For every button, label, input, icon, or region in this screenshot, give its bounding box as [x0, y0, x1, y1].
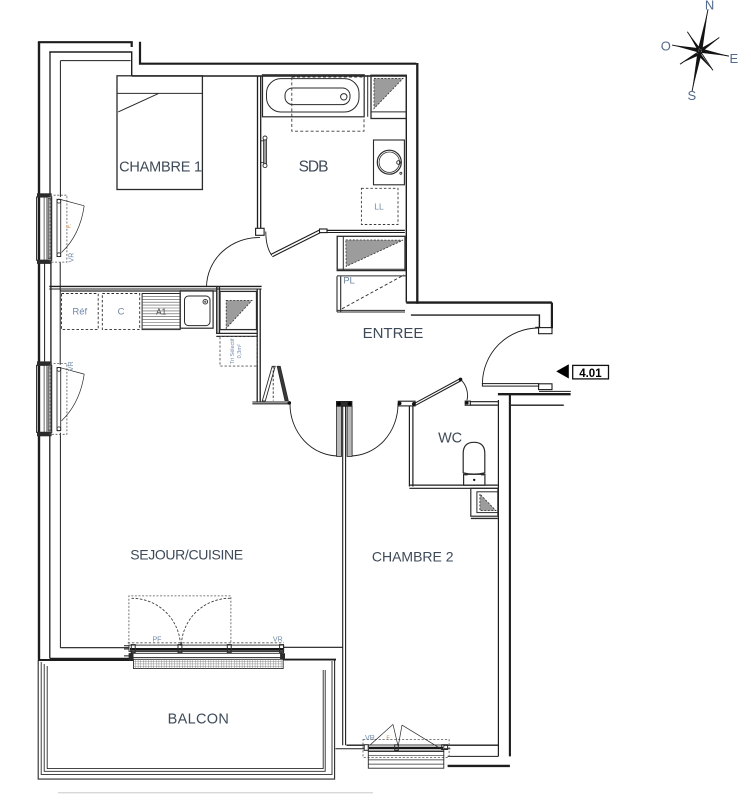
svg-text:VR: VR	[68, 361, 75, 371]
svg-text:WC: WC	[438, 431, 462, 447]
svg-text:ENTREE: ENTREE	[363, 325, 424, 342]
svg-text:C: C	[118, 307, 125, 318]
svg-text:PL: PL	[343, 276, 355, 287]
svg-text:4.01: 4.01	[579, 368, 602, 380]
svg-text:N: N	[705, 0, 714, 13]
svg-text:VR: VR	[273, 636, 283, 643]
svg-text:E: E	[729, 51, 738, 66]
svg-text:S: S	[687, 88, 696, 103]
svg-text:F.: F.	[66, 223, 72, 228]
svg-text:SEJOUR/CUISINE: SEJOUR/CUISINE	[130, 547, 243, 563]
svg-text:Réf: Réf	[72, 307, 87, 318]
svg-text:VR: VR	[68, 253, 75, 263]
svg-text:VR: VR	[365, 735, 375, 742]
svg-text:CHAMBRE 1: CHAMBRE 1	[119, 160, 202, 176]
svg-text:F.: F.	[386, 736, 391, 742]
svg-text:Tri Sélectif: Tri Sélectif	[230, 338, 236, 364]
svg-text:CHAMBRE 2: CHAMBRE 2	[372, 548, 454, 564]
svg-text:A1: A1	[156, 307, 167, 317]
svg-text:SDB: SDB	[299, 159, 329, 176]
svg-text:0,3m²: 0,3m²	[237, 344, 243, 358]
svg-text:PF: PF	[153, 636, 162, 643]
svg-text:O: O	[661, 39, 671, 54]
svg-text:LL: LL	[374, 202, 384, 212]
svg-text:BALCON: BALCON	[168, 712, 229, 728]
